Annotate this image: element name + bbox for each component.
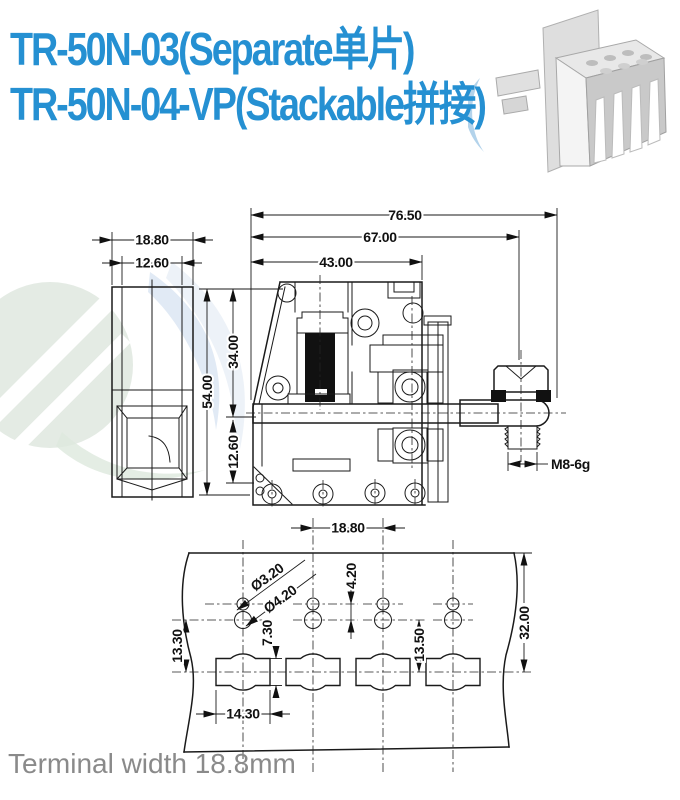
front-slot — [630, 85, 642, 152]
datasheet-page: TR-50N-03(Separate单片) TR-50N-04-VP(Stack… — [0, 0, 680, 800]
dim-lower-height: 12.60 — [225, 435, 241, 469]
product-title-line1: TR-50N-03(Separate单片) — [10, 22, 413, 77]
side-view-dimensions: 18.80 12.60 — [92, 232, 213, 286]
technical-drawing: 18.80 12.60 54.00 34.00 12.60 — [0, 195, 680, 800]
front-slot — [594, 97, 606, 163]
current-bar — [253, 404, 498, 423]
dim-body-length: 43.00 — [319, 254, 353, 270]
front-slot — [648, 79, 660, 145]
clamp-screw-head — [297, 312, 348, 333]
bolt-seal — [536, 390, 551, 402]
wire-hole — [618, 63, 630, 69]
product-title: TR-50N-03(Separate单片) TR-50N-04-VP(Stack… — [10, 22, 589, 132]
dim-left-offset: 13.30 — [169, 629, 185, 663]
dim-slot-width: 14.30 — [226, 706, 260, 722]
mounting-bolt — [491, 350, 551, 462]
section-view — [246, 275, 566, 508]
dim-side-inner-width: 12.60 — [135, 255, 169, 271]
base-hatch — [293, 459, 350, 471]
footprint-dimensions: 18.80 Ø3.20 Ø4.20 4.20 7.30 13.50 13.3 — [169, 520, 532, 725]
dim-total-length: 76.50 — [388, 207, 422, 223]
dim-row-gap: 4.20 — [343, 562, 359, 589]
wire-hole — [622, 50, 634, 56]
break-line-right — [503, 553, 517, 747]
bolt-shank — [508, 426, 537, 449]
thread-dimension: M8-6g — [508, 452, 590, 472]
terminal-width-note: Terminal width 18.8mm — [8, 748, 296, 780]
height-dimensions: 54.00 34.00 12.60 — [199, 289, 283, 495]
dim-upper-height: 34.00 — [225, 335, 241, 369]
product-title-line2: TR-50N-04-VP(Stackable拼接) — [10, 77, 485, 132]
dim-right-offset: 13.50 — [411, 628, 427, 662]
wire-clamp-hatch — [370, 345, 443, 372]
wire-hole — [636, 59, 648, 65]
wire-hole — [600, 68, 612, 74]
dim-slot-height: 7.30 — [259, 619, 275, 646]
dim-total-height: 54.00 — [199, 375, 215, 409]
stack-plate-hatch — [428, 322, 438, 502]
dim-side-outer-width: 18.80 — [135, 232, 169, 248]
mounting-slot — [388, 282, 420, 298]
dim-mid-length: 67.00 — [363, 229, 397, 245]
side-view — [112, 280, 193, 500]
footprint-view — [172, 518, 532, 772]
dim-pitch: 18.80 — [331, 520, 365, 536]
dim-strip-height: 32.00 — [516, 606, 532, 640]
dim-thread-spec: M8-6g — [551, 456, 590, 472]
bolt-seal — [491, 390, 506, 402]
wire-hole — [604, 55, 616, 61]
front-slot — [612, 91, 624, 158]
